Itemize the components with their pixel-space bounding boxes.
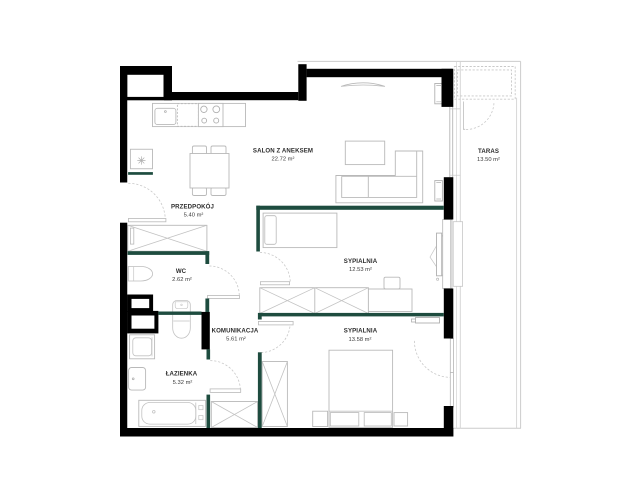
svg-text:TARAS: TARAS	[478, 148, 499, 155]
svg-text:SYPIALNIA: SYPIALNIA	[344, 258, 378, 265]
svg-text:2.62 m²: 2.62 m²	[172, 277, 192, 283]
svg-text:WC: WC	[176, 268, 187, 275]
svg-text:5.40 m²: 5.40 m²	[184, 213, 204, 219]
svg-text:PRZEDPOKÓJ: PRZEDPOKÓJ	[171, 202, 214, 210]
svg-text:22.72 m²: 22.72 m²	[272, 156, 295, 162]
svg-text:13.50 m²: 13.50 m²	[477, 157, 500, 163]
svg-text:5.32 m²: 5.32 m²	[173, 380, 193, 386]
svg-text:5.61 m²: 5.61 m²	[226, 336, 246, 342]
svg-text:SYPIALNIA: SYPIALNIA	[344, 328, 378, 335]
svg-text:KOMUNIKACJA: KOMUNIKACJA	[212, 327, 259, 334]
svg-text:13.58 m²: 13.58 m²	[349, 337, 372, 343]
svg-text:12.53 m²: 12.53 m²	[349, 267, 372, 273]
svg-text:ŁAZIENKA: ŁAZIENKA	[166, 371, 198, 378]
svg-text:SALON Z ANEKSEM: SALON Z ANEKSEM	[253, 147, 313, 154]
